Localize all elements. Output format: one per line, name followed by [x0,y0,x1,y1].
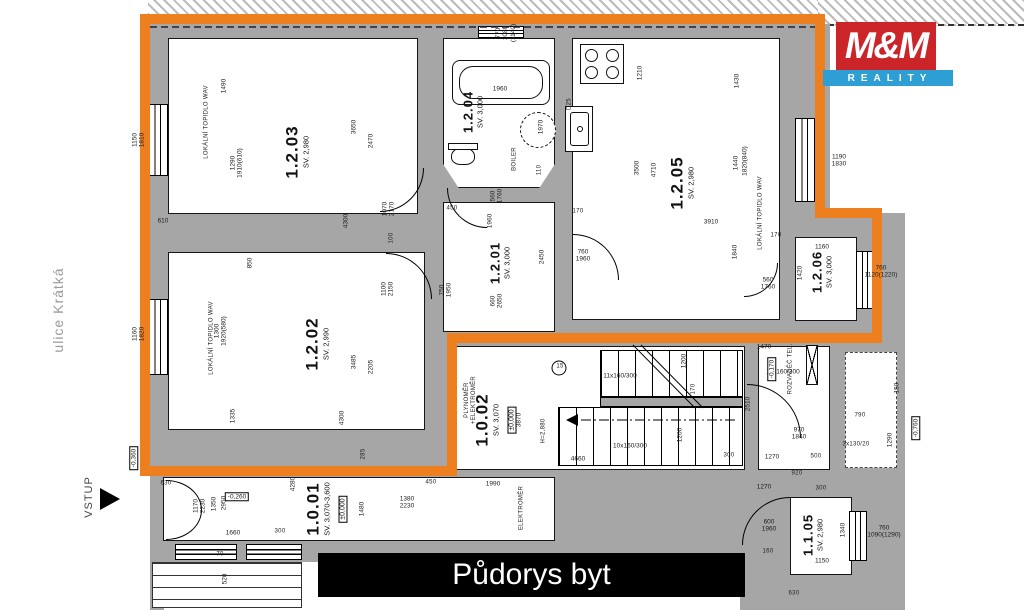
dimension-text: 2470 [367,134,374,148]
dimension-text: 1970 [537,120,544,134]
dimension-text: 1820(840) [741,146,748,176]
dimension-text: 1160 1820 [132,327,147,341]
dimension-text: 1990 [486,480,500,487]
dimension-text: 1380 2230 [400,496,414,511]
dimension-text: 1430 [733,74,740,88]
dimension-text: 1170 2230 [193,499,208,513]
dimension-text: 1160 [815,243,829,250]
dimension-text: 15 [556,364,563,371]
dimension-text: 1440 [732,156,739,170]
dimension-text: 560 1760 [761,277,775,292]
dimension-text: 1290 [886,433,893,447]
dimension-text: 3910 [704,218,718,225]
dimension-text: 1290 1910(610) [230,148,245,178]
level-mark: -0,360 [129,446,138,470]
mm-reality-logo-banner: REALITY [823,70,953,86]
dimension-text: 1350 [210,497,217,511]
room-label-1.1.05: 1.1.05SV. 2,980 [802,514,825,556]
dimension-text: 1340 [839,523,846,537]
dimension-text: 1070 2170 [382,202,397,216]
dimension-text: 4280 [289,477,296,491]
dimension-text: 1190 1830 [832,154,846,169]
dimension-text: 4300 [342,214,349,228]
dimension-text: 170 [771,233,782,240]
dimension-text: 1210 [636,66,643,80]
dimension-text: 1420 [796,266,803,280]
dimension-text: D25 [567,98,574,110]
dimension-text: 790 [855,413,866,420]
room-label-1.2.02: 1.2.02SV. 2,990 [304,317,331,370]
dimension-text: 2510 [744,397,751,411]
dimension-text: 970 1840 [792,427,806,442]
dimension-text: 4660 [571,455,585,462]
dimension-text: 450 [447,206,458,213]
dimension-text: 3650 [350,120,357,134]
dimension-text: 920 [792,471,803,478]
dimension-text: 450 [426,480,437,487]
dimension-text: 1660 [226,529,240,536]
room-label-1.0.02: 1.0.02SV. 3,070±0,000 [474,393,519,446]
room-label-1.2.06: 1.2.06SV. 3,000 [811,251,834,293]
dimension-text: 1960 [486,214,493,228]
dimension-text: LOKÁLNÍ TOPIDLO WAV [204,85,211,159]
dimension-text: 170 [573,209,584,216]
dimension-text: 520 [221,574,228,585]
dimension-text: 3485 [350,355,357,369]
dimension-text: 170 [691,384,698,395]
dimension-text: 10x160/300 [613,442,647,449]
dimension-text: ELEKTROMĚR [519,486,526,530]
annotation-layer: 14901290 1910(610)1150 18106101160 18203… [0,0,1024,610]
room-label-1.0.01: 1.0.01SV. 3,070-3,600±0,000 [305,482,350,536]
dimension-text: 11x160/300 [603,372,637,379]
dimension-text: 1480 [358,502,365,516]
dimension-text: 610 [158,217,169,224]
dimension-text: 300 [724,453,735,460]
dimension-text: ROZVADĚČ TEL. [788,343,795,394]
dimension-text: LOKÁLNÍ TOPIDLO WAV [758,176,765,250]
room-label-1.2.03: 1.2.03SV. 2,980 [284,125,311,178]
dimension-text: 760 1120(1220) [865,265,898,280]
dimension-text: 3x130/20 [842,442,869,449]
dimension-text: 300 [816,486,827,493]
dimension-text: 660 2650 [490,294,505,308]
dimension-text: 1840 [731,245,738,259]
dimension-text: 1960 [493,85,507,92]
dimension-text: 70 [216,552,223,559]
logo-reality-text: REALITY [848,73,933,84]
street-name-label: ulice Krátká [50,267,66,352]
mm-reality-logo: M&M [836,22,936,70]
dimension-text: LOKÁLNÍ TOPIDLO WAV [209,301,216,375]
dimension-text: 3870 [515,413,522,427]
dimension-text: 500 [811,454,822,461]
dimension-text: 630 [161,481,172,488]
dimension-text: 4710 [650,163,657,177]
dimension-text: 1470 [757,343,771,350]
dimension-text: 1150 [815,557,829,564]
drawing-title: Půdorys byt [452,558,610,592]
level-mark: -0,260 [225,492,249,501]
dimension-text: 560 1760 [490,189,505,203]
dimension-text: 3500 [633,161,640,175]
dimension-text: 160 [763,549,774,556]
dimension-text: 760 1960 [576,249,590,264]
logo-mm-text: M&M [845,25,927,67]
dimension-text: 300 [275,529,286,536]
floor-plan-canvas: 14901290 1910(610)1150 18106101160 18203… [0,0,1024,610]
dimension-text: 760 1090(1290) [867,525,900,540]
dimension-text: 630 [789,591,800,598]
dimension-text: 1490 [220,79,227,93]
level-mark: -0,760 [911,416,920,440]
dimension-text: 600 1960 [762,519,776,534]
dimension-text: 850 [246,258,253,269]
dimension-text: 1335 [229,409,236,423]
room-label-1.2.05: 1.2.05SV. 2,980 [669,156,696,209]
dimension-text: 110 [537,165,544,175]
dimension-text: 2205 [367,360,374,374]
dimension-text: 285 [361,449,368,460]
dimension-text: 1300 1920(580) [214,316,229,346]
dimension-text: 11x160/300 [766,368,800,375]
room-label-1.2.04: 1.2.04SV. 3,000 [462,91,485,133]
dimension-text: 2950 [220,496,227,510]
room-label-1.2.01: 1.2.01SV. 3,000 [489,242,512,284]
dimension-text: 1270 [757,483,771,490]
dimension-text: 750 1950 [439,283,454,297]
dimension-text: 770 1080 (1140) [495,24,517,42]
drawing-title-bar: Půdorys byt [318,553,745,597]
dimension-text: 100 [389,233,396,244]
entrance-label: VSTUP [83,476,95,518]
dimension-text: 2450 [538,250,545,264]
level-mark: -0,170 [767,357,776,381]
dimension-text: 4300 [338,411,345,425]
dimension-text: 1200 [680,354,687,368]
dimension-text: BOILER [512,147,519,171]
dimension-text: H=2,880 [541,419,548,444]
dimension-text: 1150 1810 [132,133,147,147]
dimension-text: 1200 [676,428,683,442]
dimension-text: 150 [893,383,900,394]
dimension-text: PLYNOMĚR +ELEKTROMĚR [464,376,478,424]
dimension-text: 1100 2150 [381,282,396,296]
dimension-text: 1270 [765,453,779,460]
